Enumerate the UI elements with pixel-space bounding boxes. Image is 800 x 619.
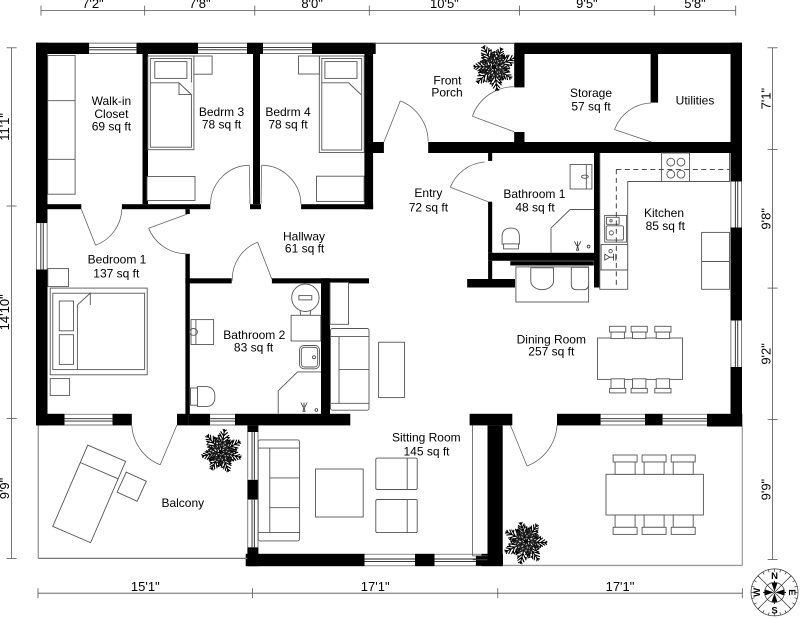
- svg-text:257 sq ft: 257 sq ft: [528, 345, 575, 359]
- svg-text:E: E: [786, 589, 797, 595]
- svg-text:17'1": 17'1": [606, 579, 635, 594]
- svg-text:7'2": 7'2": [82, 0, 104, 11]
- svg-text:Bedroom 1: Bedroom 1: [88, 253, 147, 267]
- svg-text:137 sq ft: 137 sq ft: [93, 266, 140, 280]
- svg-text:72 sq ft: 72 sq ft: [409, 200, 449, 214]
- svg-text:Walk-in: Walk-in: [92, 94, 132, 108]
- svg-text:85 sq ft: 85 sq ft: [646, 219, 686, 233]
- svg-text:57 sq ft: 57 sq ft: [571, 100, 611, 114]
- svg-text:61 sq ft: 61 sq ft: [285, 242, 325, 256]
- svg-text:9'2": 9'2": [758, 343, 773, 365]
- svg-text:10'5": 10'5": [430, 0, 459, 11]
- svg-text:69 sq ft: 69 sq ft: [92, 120, 132, 134]
- svg-text:Entry: Entry: [414, 186, 442, 200]
- svg-text:Sitting Room: Sitting Room: [392, 431, 461, 445]
- svg-text:Utilities: Utilities: [676, 94, 715, 108]
- svg-text:7'1": 7'1": [758, 87, 773, 109]
- svg-text:9'8": 9'8": [758, 208, 773, 230]
- svg-text:78 sq ft: 78 sq ft: [268, 118, 308, 132]
- svg-text:Bathroom 2: Bathroom 2: [223, 328, 285, 342]
- svg-text:9'5": 9'5": [576, 0, 598, 11]
- svg-text:78 sq ft: 78 sq ft: [202, 118, 242, 132]
- svg-text:9'9": 9'9": [0, 477, 12, 499]
- svg-text:N: N: [771, 571, 778, 582]
- svg-text:Bathroom 1: Bathroom 1: [503, 187, 565, 201]
- svg-text:Balcony: Balcony: [161, 496, 204, 510]
- svg-text:11'1": 11'1": [0, 113, 12, 141]
- svg-text:Porch: Porch: [431, 86, 462, 100]
- svg-text:Kitchen: Kitchen: [644, 206, 684, 220]
- svg-text:145 sq ft: 145 sq ft: [403, 444, 450, 458]
- svg-text:9'9": 9'9": [758, 478, 773, 500]
- svg-text:7'8": 7'8": [189, 0, 211, 11]
- svg-text:Storage: Storage: [570, 86, 612, 100]
- svg-text:15'1": 15'1": [131, 579, 160, 594]
- svg-text:48 sq ft: 48 sq ft: [515, 200, 555, 214]
- svg-text:S: S: [771, 605, 777, 616]
- svg-text:17'1": 17'1": [361, 579, 390, 594]
- svg-text:8'0": 8'0": [301, 0, 323, 11]
- svg-text:5'8": 5'8": [684, 0, 706, 11]
- svg-text:14'10": 14'10": [0, 294, 12, 330]
- svg-text:W: W: [752, 588, 763, 597]
- svg-text:83 sq ft: 83 sq ft: [234, 341, 274, 355]
